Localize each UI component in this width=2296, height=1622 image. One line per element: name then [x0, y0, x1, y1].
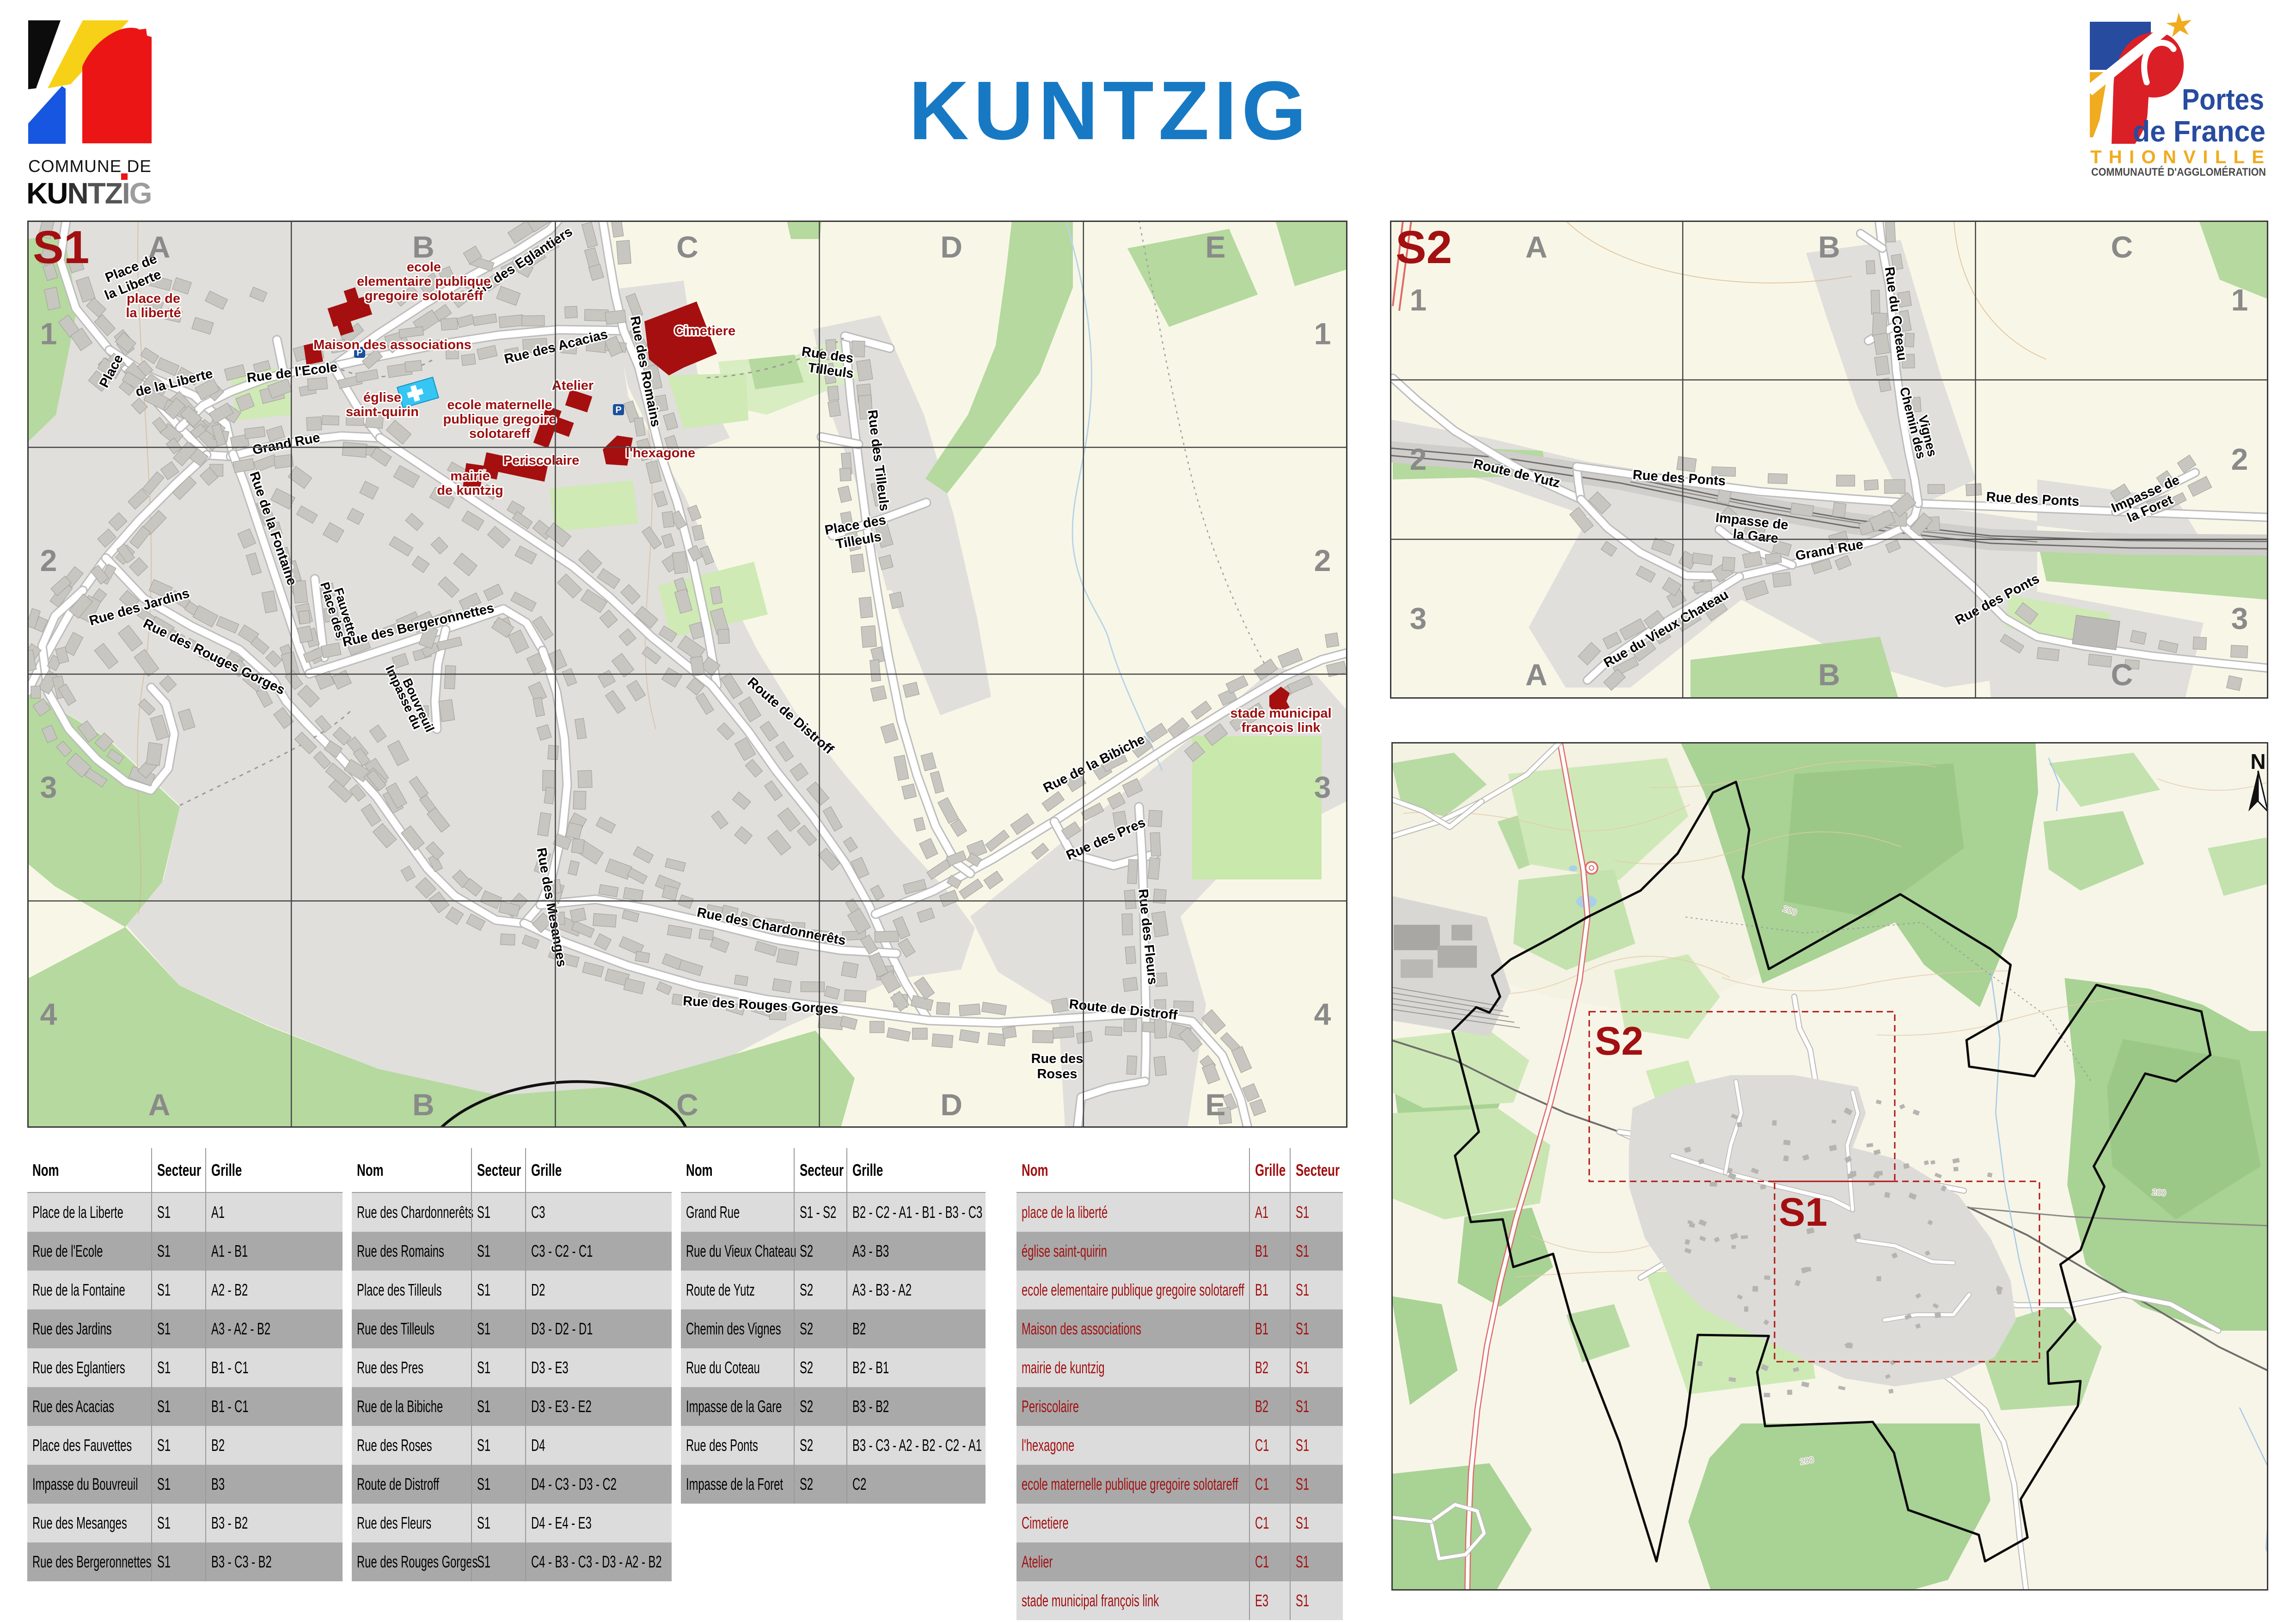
svg-text:C: C	[676, 1087, 698, 1122]
svg-text:4: 4	[1314, 997, 1331, 1031]
svg-text:2: 2	[2231, 442, 2248, 476]
svg-text:2: 2	[1314, 543, 1331, 578]
svg-text:1: 1	[40, 316, 57, 350]
svg-text:A: A	[148, 1087, 171, 1122]
svg-text:D: D	[940, 1087, 962, 1122]
svg-text:A: A	[1525, 230, 1548, 264]
svg-text:S1: S1	[1779, 1190, 1827, 1235]
svg-text:S2: S2	[1396, 221, 1452, 273]
svg-text:3: 3	[40, 770, 57, 804]
svg-text:elementaire publique: elementaire publique	[357, 274, 491, 289]
svg-text:Atelier: Atelier	[552, 378, 594, 393]
svg-text:COMMUNAUTÉ D'AGGLOMÉRATION: COMMUNAUTÉ D'AGGLOMÉRATION	[2091, 166, 2266, 178]
svg-text:Roses: Roses	[1037, 1067, 1077, 1081]
svg-text:4: 4	[40, 997, 57, 1031]
svg-text:C: C	[2111, 657, 2133, 692]
svg-text:THIONVILLE: THIONVILLE	[2090, 147, 2264, 167]
svg-text:3: 3	[2231, 602, 2248, 636]
svg-text:saint-quirin: saint-quirin	[346, 405, 419, 419]
svg-text:B: B	[1818, 230, 1840, 264]
svg-text:ecole maternelle: ecole maternelle	[447, 398, 552, 412]
svg-text:place de: place de	[127, 291, 180, 306]
svg-text:D: D	[940, 230, 962, 264]
svg-text:3: 3	[1410, 602, 1427, 636]
svg-text:2: 2	[1410, 442, 1427, 476]
svg-text:B: B	[412, 230, 435, 264]
svg-text:solotareff: solotareff	[469, 426, 530, 441]
svg-text:1: 1	[1314, 316, 1331, 350]
svg-text:Cimetiere: Cimetiere	[674, 324, 735, 338]
svg-text:KUNTZIG: KUNTZIG	[26, 177, 151, 208]
svg-text:Periscolaire: Periscolaire	[503, 453, 579, 468]
svg-text:l'hexagone: l'hexagone	[626, 446, 695, 461]
svg-text:C: C	[676, 230, 698, 264]
svg-text:de kuntzig: de kuntzig	[437, 483, 503, 498]
svg-text:publique gregoire: publique gregoire	[443, 412, 557, 427]
svg-text:B: B	[412, 1087, 435, 1122]
svg-text:S1: S1	[33, 221, 89, 273]
svg-text:église: église	[363, 390, 401, 405]
svg-text:1: 1	[1410, 283, 1427, 317]
svg-text:Maison des associations: Maison des associations	[313, 338, 471, 352]
svg-text:A: A	[148, 230, 171, 264]
svg-text:1: 1	[2231, 283, 2248, 317]
svg-text:françois link: françois link	[1242, 720, 1321, 735]
svg-text:la liberté: la liberté	[126, 306, 181, 320]
svg-text:mairie: mairie	[450, 469, 490, 484]
svg-text:Rue des: Rue des	[1031, 1051, 1084, 1066]
svg-text:N: N	[2250, 750, 2265, 774]
svg-text:2: 2	[40, 543, 57, 578]
svg-text:P: P	[615, 405, 621, 415]
svg-text:E: E	[1205, 230, 1225, 264]
svg-text:A: A	[1525, 657, 1548, 692]
svg-text:S2: S2	[1595, 1019, 1643, 1063]
svg-text:COMMUNE DE: COMMUNE DE	[28, 157, 152, 176]
svg-text:B: B	[1818, 657, 1840, 692]
svg-text:E: E	[1205, 1087, 1225, 1122]
svg-text:C: C	[2111, 230, 2133, 264]
svg-text:gregoire solotareff: gregoire solotareff	[365, 289, 484, 303]
svg-text:Portes: Portes	[2182, 83, 2264, 116]
svg-text:stade municipal: stade municipal	[1230, 706, 1331, 721]
svg-text:3: 3	[1314, 770, 1331, 804]
svg-text:200: 200	[2152, 1187, 2167, 1198]
svg-text:de France: de France	[2133, 115, 2265, 148]
